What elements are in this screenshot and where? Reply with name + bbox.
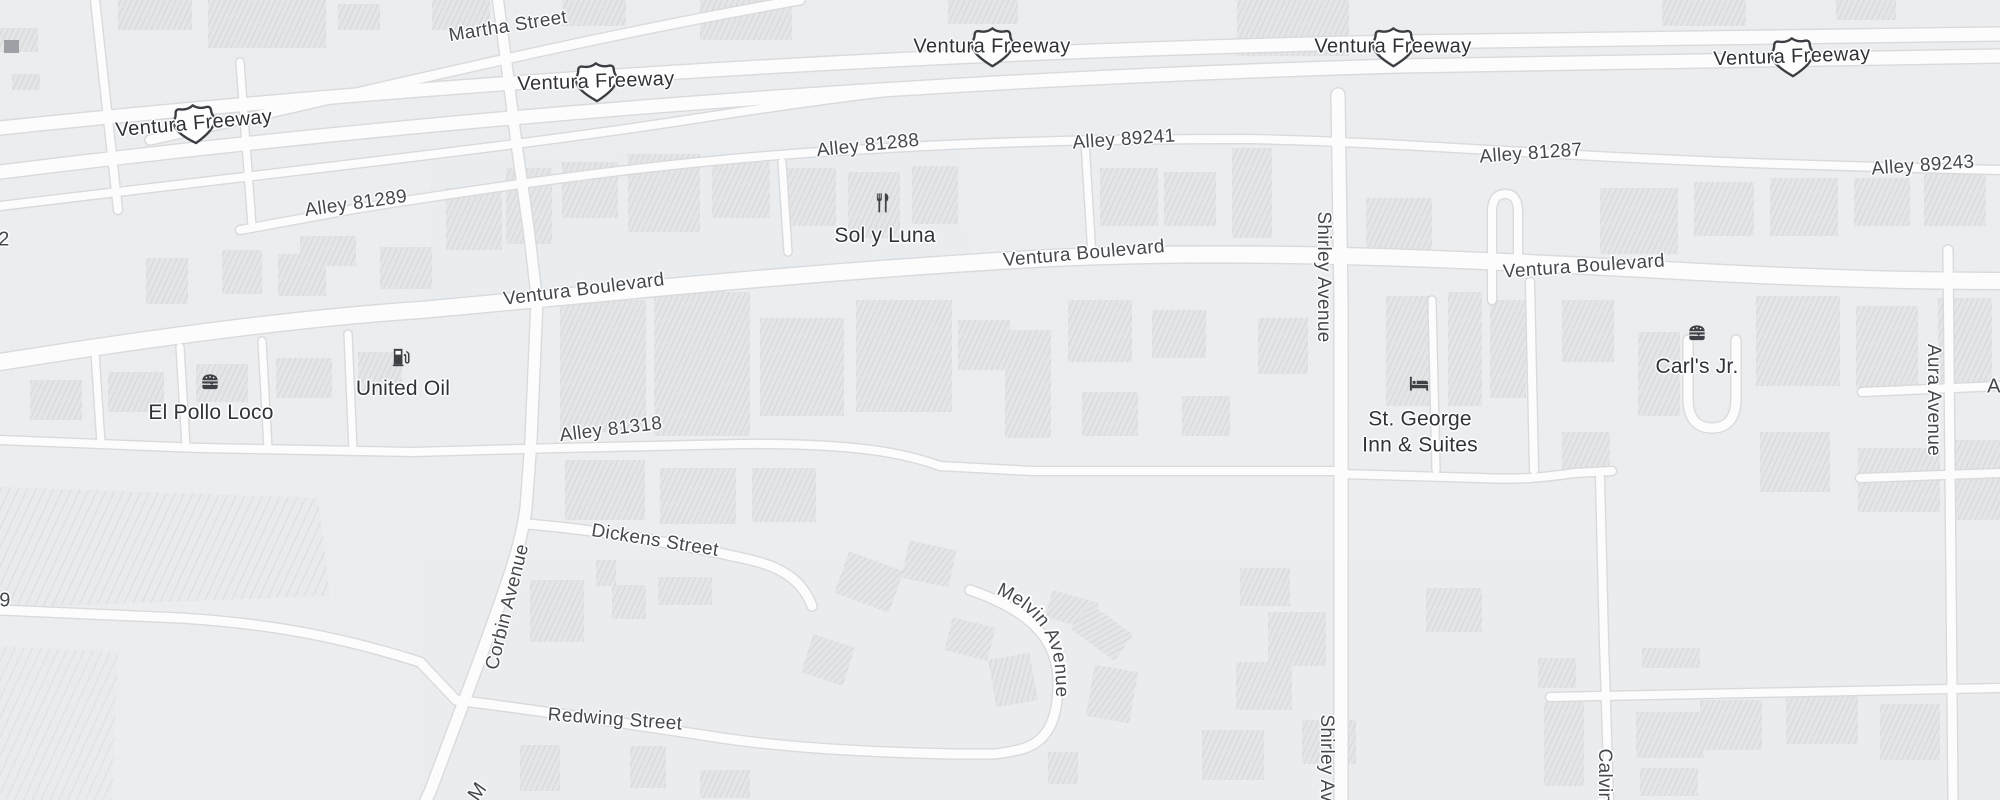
building [118,0,192,30]
road [1432,300,1436,470]
building [1694,182,1754,236]
map-viewport[interactable]: Melvin Avenue Martha StreetVentura Freew… [0,0,2000,800]
building [912,166,958,224]
parking-lot [0,487,330,608]
building [1068,300,1132,362]
building [1954,440,2000,520]
building [700,770,750,798]
building [1366,198,1432,254]
building [1856,306,1918,388]
building [630,746,666,788]
building [1600,188,1678,254]
building [1562,432,1610,470]
building [1700,700,1762,750]
building [222,250,262,294]
building [338,4,380,30]
building [988,653,1038,708]
road [1530,282,1534,470]
building [1638,332,1680,416]
building [1426,588,1482,632]
building [1152,310,1206,358]
building [1662,0,1746,26]
building [1386,296,1430,406]
building [12,74,40,90]
building [1640,768,1698,796]
building [208,0,326,48]
building [146,258,188,304]
building [520,745,560,791]
building [1240,568,1290,606]
building [654,292,750,436]
building [658,577,712,605]
building [358,352,402,392]
building [856,300,952,412]
building [1005,330,1051,438]
building [1786,690,1858,744]
building [660,468,736,524]
road [1338,95,1341,800]
building [752,468,816,522]
building [1756,296,1840,386]
building [530,580,584,642]
building [565,460,645,520]
building [30,380,82,420]
building [1202,730,1264,780]
building [958,320,1010,370]
building [1760,432,1830,492]
building [1100,168,1158,226]
building [1082,392,1138,436]
building [1236,662,1292,710]
map-canvas: Melvin Avenue [0,0,2000,800]
building [1164,172,1216,226]
building [1836,0,1896,20]
building [1854,178,1910,226]
building [562,0,626,26]
building [848,172,900,238]
building [4,40,19,53]
building [432,0,490,30]
building [612,585,646,619]
building [1562,300,1614,362]
building [196,364,248,402]
building [1232,148,1272,238]
building [596,560,616,586]
building [1770,178,1838,236]
building [300,236,356,266]
building [276,358,332,398]
building [1636,712,1704,758]
road [1948,250,1953,800]
building [712,162,770,218]
building [1544,702,1584,786]
building [1642,648,1700,668]
road [1860,473,2000,478]
building [1924,174,1986,226]
building [1182,396,1230,436]
building [108,372,164,412]
building [560,300,646,432]
road [348,334,353,450]
building [1490,300,1526,398]
building [1086,665,1138,724]
building [380,247,432,289]
building [1048,752,1078,784]
building [1448,292,1482,406]
parking-lot [0,646,118,800]
building [760,318,844,416]
building [1538,658,1576,688]
building [1880,704,1940,760]
building [948,0,1018,24]
building [1268,612,1326,666]
building [1258,318,1308,374]
